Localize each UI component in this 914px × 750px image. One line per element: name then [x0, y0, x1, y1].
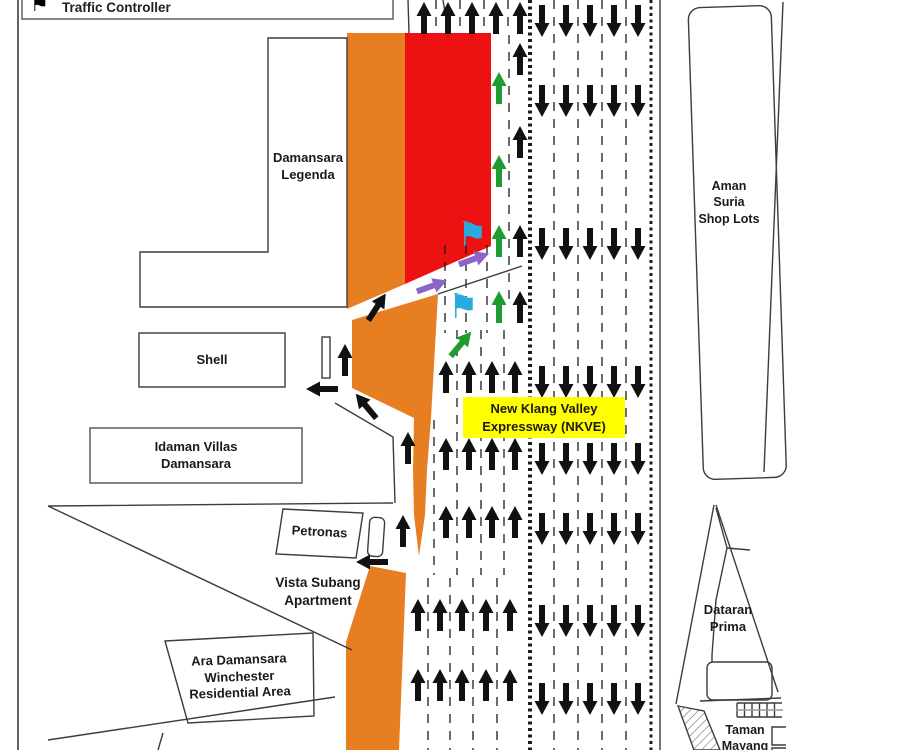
area-label-vista-subang: Vista Subang Apartment	[248, 574, 388, 609]
southbound-lane-arrow	[631, 228, 646, 260]
northbound-open-lane-arrow	[513, 43, 528, 75]
northbound-lane-arrow-bottom	[455, 599, 470, 631]
southbound-lane-arrow	[535, 5, 550, 37]
northbound-top-lane-arrow	[417, 2, 432, 34]
southbound-lane-arrow	[631, 5, 646, 37]
diversion-arrow-green	[445, 327, 477, 361]
contraflow-green-arrow	[492, 72, 507, 104]
northbound-lane-arrow-mid	[439, 506, 454, 538]
northbound-lane-arrow-mid	[462, 361, 477, 393]
aman-suria-outline	[688, 5, 787, 479]
area-label-dataran-prima: Dataran Prima	[688, 602, 768, 636]
contraflow-green-arrow	[492, 225, 507, 257]
southbound-lane-arrow	[631, 683, 646, 715]
northbound-lane-arrow-bottom	[503, 599, 518, 631]
southbound-lane-arrow	[607, 443, 622, 475]
northbound-lane-arrow-mid	[439, 361, 454, 393]
southbound-lane-arrow	[607, 366, 622, 398]
southbound-lane-arrow	[559, 605, 574, 637]
northbound-lane-arrow-mid	[462, 506, 477, 538]
southbound-lane-arrow	[607, 5, 622, 37]
closed-ramp-orange-middle	[352, 294, 438, 556]
southbound-lane-arrow	[583, 683, 598, 715]
southbound-lane-arrow	[535, 443, 550, 475]
southbound-lane-arrow	[535, 366, 550, 398]
northbound-lane-arrow-mid	[462, 438, 477, 470]
exit-arrow-up	[338, 344, 353, 376]
northbound-lane-arrow-mid	[439, 438, 454, 470]
northbound-lane-arrow-bottom	[455, 669, 470, 701]
southbound-lane-arrow	[631, 605, 646, 637]
northbound-lane-arrow-bottom	[479, 669, 494, 701]
southbound-lane-arrow	[583, 85, 598, 117]
northbound-open-lane-arrow	[513, 225, 528, 257]
southbound-lane-arrow	[583, 228, 598, 260]
southbound-lane-arrow	[559, 683, 574, 715]
northbound-lane-arrow-mid	[485, 438, 500, 470]
southbound-lane-arrow	[559, 513, 574, 545]
contraflow-green-arrow	[492, 155, 507, 187]
southbound-lane-arrow	[607, 513, 622, 545]
northbound-lane-arrow-mid	[485, 506, 500, 538]
legend-item-traffic-controller: Traffic Controller	[62, 0, 171, 15]
southbound-lane-arrow	[583, 443, 598, 475]
southbound-lane-arrow	[631, 443, 646, 475]
traffic-management-plan: ⚑ Traffic Controller Damansara Legenda S…	[0, 0, 914, 750]
southbound-lane-arrow	[631, 85, 646, 117]
northbound-lane-arrow-bottom	[433, 669, 448, 701]
northbound-lane-arrow-mid	[508, 361, 523, 393]
area-label-ara-damansara: Ara Damansara Winchester Residential Are…	[164, 630, 316, 723]
southbound-lane-arrow	[535, 683, 550, 715]
northbound-top-lane-arrow	[489, 2, 504, 34]
northbound-top-lane-arrow	[513, 2, 528, 34]
northbound-top-lane-arrow	[441, 2, 456, 34]
highway-name-label: New Klang Valley Expressway (NKVE)	[463, 397, 625, 438]
area-label-aman-suria: Aman Suria Shop Lots	[689, 178, 769, 227]
southbound-lane-arrow	[583, 513, 598, 545]
southbound-lane-arrow	[631, 366, 646, 398]
traffic-island-shell	[322, 337, 330, 378]
northbound-open-lane-arrow	[513, 126, 528, 158]
area-label-idaman-villas: Idaman Villas Damansara	[90, 428, 302, 483]
northbound-lane-arrow-bottom	[411, 599, 426, 631]
work-zone-red	[405, 33, 491, 284]
southbound-lane-arrow	[583, 366, 598, 398]
area-label-taman-mayang: Taman Mayang	[705, 722, 785, 750]
southbound-lane-arrow	[607, 85, 622, 117]
northbound-lane-arrow-bottom	[433, 599, 448, 631]
northbound-lane-arrow-mid	[508, 438, 523, 470]
southbound-lane-arrow	[559, 5, 574, 37]
southbound-lane-arrow	[559, 228, 574, 260]
contraflow-green-arrow	[492, 291, 507, 323]
northbound-lane-arrow-bottom	[411, 669, 426, 701]
area-label-shell: Shell	[139, 333, 285, 387]
area-label-petronas: Petronas	[275, 507, 364, 557]
southbound-lane-arrow	[535, 228, 550, 260]
dataran-prima-inner-block	[707, 662, 772, 700]
northbound-lane-arrow-bottom	[503, 669, 518, 701]
exit-arrow-left	[306, 382, 338, 397]
northbound-open-lane-arrow	[513, 291, 528, 323]
southbound-lane-arrow	[607, 605, 622, 637]
southbound-lane-arrow	[583, 605, 598, 637]
southbound-lane-arrow	[559, 85, 574, 117]
southbound-lane-arrow	[559, 443, 574, 475]
area-label-damansara-legenda: Damansara Legenda	[238, 150, 378, 184]
northbound-lane-arrow-mid	[508, 506, 523, 538]
northbound-lane-arrow-mid	[485, 361, 500, 393]
southbound-lane-arrow	[607, 228, 622, 260]
southbound-lane-arrow	[607, 683, 622, 715]
southbound-lane-arrow	[631, 513, 646, 545]
southbound-lane-arrow	[535, 85, 550, 117]
southbound-lane-arrow	[583, 5, 598, 37]
southbound-lane-arrow	[535, 605, 550, 637]
southbound-lane-arrow	[535, 513, 550, 545]
northbound-lane-arrow-bottom	[479, 599, 494, 631]
northbound-top-lane-arrow	[465, 2, 480, 34]
southbound-lane-arrow	[559, 366, 574, 398]
site-map-drawing	[0, 0, 914, 750]
ramp-arrow-up-2	[396, 515, 411, 547]
traffic-island-petronas	[367, 517, 385, 557]
